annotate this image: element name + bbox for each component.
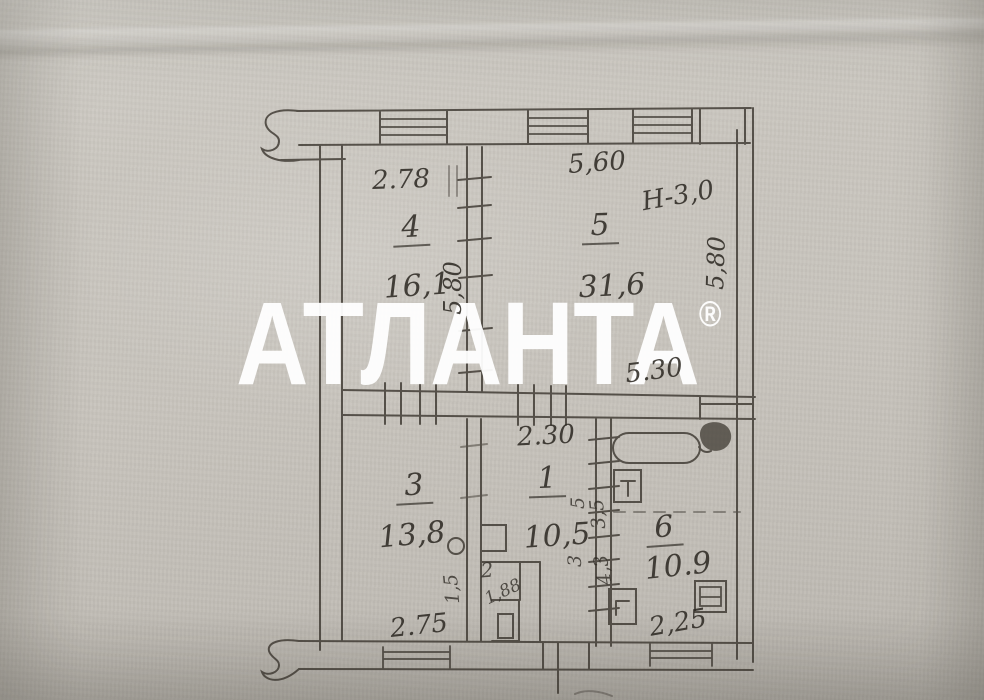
room-4-number: 4 [392, 211, 431, 247]
window-icon-top [380, 117, 692, 135]
room-3-number: 3 [395, 469, 434, 505]
toilet-bowl-icon [498, 614, 513, 638]
scribble-1: 3,5 [586, 498, 611, 530]
scribble-3: 1,5 [440, 573, 465, 605]
dim-bottom-left: 2.75 [389, 608, 450, 644]
room-5-number: 5 [581, 209, 619, 245]
bathtub-icon [613, 433, 700, 463]
dim-top-right: 5,60 [567, 146, 627, 180]
dim-vertical-right: 5,80 [701, 236, 731, 290]
wall-room3-hall [448, 419, 506, 641]
sink-icon [700, 422, 731, 451]
room-6-number: 6 [644, 510, 683, 547]
room-5-area: 31,6 [578, 267, 647, 305]
room-1-number: 1 [528, 462, 566, 498]
dim-hall-top: 2.30 [516, 420, 575, 453]
dim-top-left: 2.78 [372, 164, 431, 196]
window-icon-bottom [383, 644, 712, 668]
top-wall [262, 108, 751, 161]
door-knob-icon [448, 538, 464, 554]
room-4-area: 16,1 [382, 266, 451, 306]
scribble-4: 3 [564, 555, 586, 567]
registered-mark-icon: ® [699, 293, 722, 334]
room-6-area: 10.9 [643, 545, 713, 587]
bottom-wall [262, 640, 753, 696]
room-2-number: 2 [480, 557, 495, 582]
fixture-square-left [609, 589, 636, 624]
right-wall [737, 108, 753, 662]
room-3-area: 13,8 [377, 515, 447, 556]
door-leaf-icon [481, 525, 506, 551]
scribble-5: 5 [567, 497, 589, 509]
floor-plan-photo: АТЛАНТА® 2.78 5,60 Н-3,0 5.30 2.30 2.75 … [0, 0, 984, 700]
room-1-area: 10,5 [522, 516, 591, 556]
